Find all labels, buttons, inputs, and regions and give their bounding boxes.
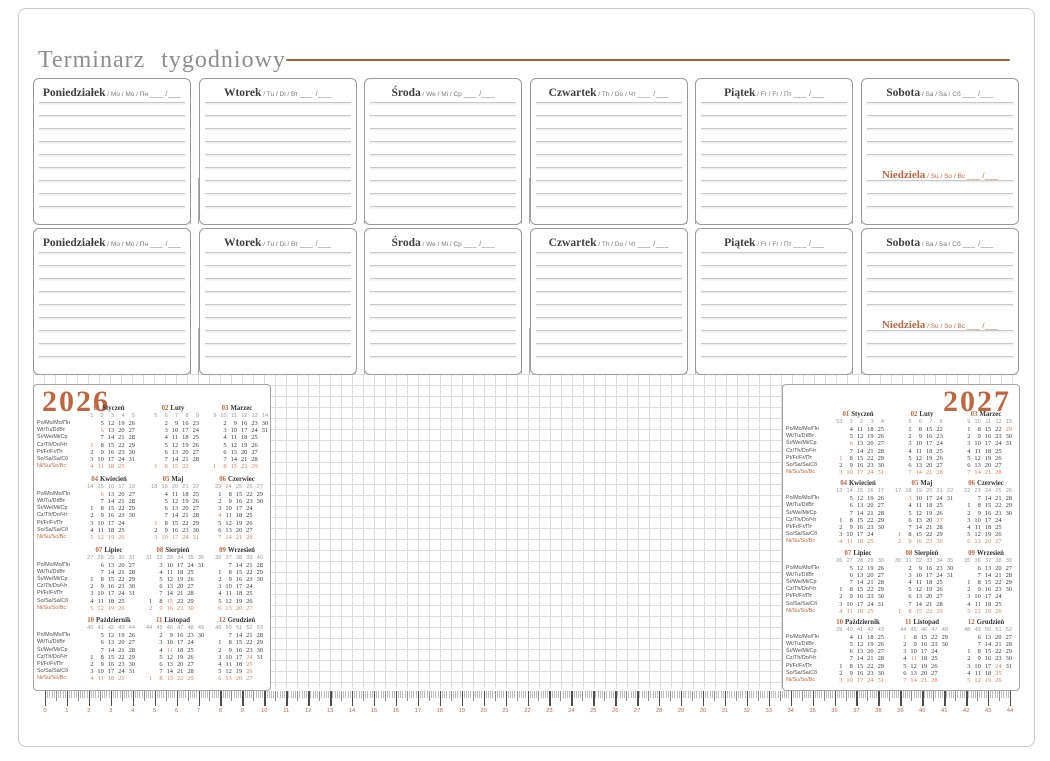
day-panel-header: Środa / We / Mi / Ср ___ /___ [365, 233, 521, 251]
date-cell: 3 [211, 583, 221, 590]
date-cell: 30 [874, 462, 884, 469]
ruler-tick-minor [117, 691, 118, 698]
date-cell: 3 [83, 590, 93, 597]
ruler-tick [440, 691, 441, 706]
date-cell [891, 601, 901, 608]
ruler-tick-minor [758, 691, 759, 701]
ruler-tick-minor [541, 691, 542, 698]
ruler-tick-minor [999, 691, 1000, 701]
date-cell: 1 [896, 634, 906, 641]
month-row: 7142128 [960, 641, 1012, 648]
date-cell: 13 [912, 462, 922, 469]
date-cell [125, 463, 135, 470]
date-cell [943, 510, 953, 517]
ruler-tick-minor [874, 691, 875, 698]
ruler-tick-minor [694, 691, 695, 698]
date-cell: 5 [157, 498, 167, 505]
date-cell: 16 [922, 565, 932, 572]
month-slot: 11Listopad444546474818152229291623303101… [890, 619, 954, 688]
week-number: 2 [853, 419, 863, 426]
date-cell: 26 [927, 663, 937, 670]
ruler-tick-minor [389, 691, 390, 698]
date-cell [938, 655, 948, 662]
week-number: 36 [970, 558, 980, 565]
date-cell: 4 [83, 598, 93, 605]
date-cell: 28 [932, 601, 942, 608]
date-cell: 8 [157, 520, 167, 527]
date-cell: 4 [83, 527, 93, 534]
month-row: 29162330 [142, 632, 204, 639]
month-name: Październik [96, 617, 131, 624]
month-header: 11Listopad [142, 617, 204, 625]
ruler-tick-minor [381, 691, 382, 698]
date-cell [194, 675, 204, 682]
date-cell [83, 569, 93, 576]
month-row: 6132027 [211, 675, 263, 682]
date-cell: 25 [247, 434, 257, 441]
date-cell [142, 576, 152, 583]
date-cell: 16 [104, 583, 114, 590]
ruler-tick-minor [407, 691, 408, 701]
date-cell: 26 [874, 433, 884, 440]
ruler-tick-minor [451, 691, 452, 701]
date-cell: 28 [991, 469, 1001, 476]
date-cell: 17 [232, 583, 242, 590]
month-row: 6132027 [960, 462, 1012, 469]
date-cell: 15 [912, 531, 922, 538]
ruler-tick-minor [626, 691, 627, 701]
week-number: 10 [970, 419, 980, 426]
date-cell: 16 [853, 462, 863, 469]
ruler-tick-minor [201, 691, 202, 698]
date-cell: 3 [832, 531, 842, 538]
ruler-tick-minor [894, 691, 895, 698]
date-cell [891, 502, 901, 509]
date-cell: 7 [970, 495, 980, 502]
ruler-tick-minor [359, 691, 360, 698]
week-number: 45 [152, 625, 162, 632]
week-numbers-row: 3940414243 [832, 627, 884, 634]
ruler-tick-minor [420, 691, 421, 698]
date-cell: 12 [221, 668, 231, 675]
month-name: Lipiec [104, 547, 122, 554]
month-row: 6132027 [142, 661, 204, 668]
ruler-tick-minor [343, 691, 344, 698]
date-cell [938, 677, 948, 684]
ruler-tick-minor [782, 691, 783, 698]
date-cell: 10 [221, 583, 231, 590]
ruler-tick-minor [762, 691, 763, 698]
ruler-tick-minor [288, 691, 289, 698]
date-cell: 31 [253, 654, 263, 661]
month-row: 18152229 [147, 520, 199, 527]
date-cell: 15 [981, 648, 991, 655]
date-cell [83, 562, 93, 569]
ruler-tick-minor [122, 691, 123, 701]
date-cell: 9 [970, 655, 980, 662]
ruler-tick-minor [832, 691, 833, 698]
month-row: 29162330 [147, 527, 199, 534]
ruler-tick-minor [536, 691, 537, 698]
month-row: 3101724 [211, 505, 263, 512]
desk-pad-sheet: Terminarz tygodniowy Poniedziałek / Mo /… [0, 0, 1050, 761]
ruler-tick [352, 691, 353, 706]
panel-connector-tab [521, 328, 531, 374]
date-cell: 14 [104, 498, 114, 505]
date-cell: 30 [125, 512, 135, 519]
date-cell [142, 583, 152, 590]
date-cell: 12 [853, 495, 863, 502]
month-row: 5121926 [832, 495, 884, 502]
date-cell: 20 [863, 440, 873, 447]
date-cell: 29 [183, 598, 193, 605]
date-cell [142, 590, 152, 597]
week-number: 42 [104, 625, 114, 632]
month-number: 08 [157, 547, 164, 554]
date-cell: 23 [183, 632, 193, 639]
weekday-label: Ni/Su/So/Вс [37, 463, 77, 470]
month-row: 7142128 [211, 534, 263, 541]
ruler-tick [45, 691, 46, 706]
date-cell: 22 [863, 517, 873, 524]
weekday-label: So/Sa/Sa/Сб [37, 456, 77, 463]
month-header: 06Czerwiec [211, 476, 263, 484]
date-cell: 1 [147, 520, 157, 527]
week-number: 20 [168, 484, 178, 491]
month-row: 29162330 [960, 586, 1012, 593]
ruler-tick-minor [861, 691, 862, 698]
ruler-tick-minor [624, 691, 625, 698]
ruler-number: 18 [432, 708, 448, 714]
day-abbr: / Su / So / Вс [925, 173, 967, 180]
month-row: 6132027 [891, 517, 953, 524]
day-panel-header: Wtorek / Tu / Di / Вт ___ /___ [200, 233, 356, 251]
date-cell: 23 [114, 583, 124, 590]
weekday-label: Cz/Th/Do/Чт [37, 654, 77, 661]
date-cell: 22 [927, 634, 937, 641]
date-cell: 26 [183, 576, 193, 583]
date-cell: 5 [842, 565, 852, 572]
date-cell: 17 [237, 427, 247, 434]
week-number: 29 [104, 555, 114, 562]
date-cell: 3 [83, 520, 93, 527]
ruler-tick-minor [635, 691, 636, 698]
date-cell: 3 [211, 654, 221, 661]
date-cell [189, 463, 199, 470]
week-number: 35 [943, 558, 953, 565]
date-cell: 23 [863, 670, 873, 677]
date-cell [938, 670, 948, 677]
date-cell: 11 [221, 590, 231, 597]
date-cell: 6 [842, 648, 852, 655]
date-cell: 22 [173, 598, 183, 605]
month-row: 5121926 [206, 442, 268, 449]
date-cell: 8 [970, 426, 980, 433]
ruler-tick-minor [328, 691, 329, 698]
date-cell: 1 [960, 579, 970, 586]
ruler-tick-minor [889, 691, 890, 701]
ruler-tick-minor [378, 691, 379, 698]
date-cell: 22 [922, 531, 932, 538]
week-numbers-row: 1415161718 [83, 484, 135, 491]
ruler-tick-minor [990, 691, 991, 698]
date-cell: 8 [152, 675, 162, 682]
month-row: 310172431 [211, 654, 263, 661]
date-cell: 11 [93, 463, 103, 470]
date-cell: 4 [901, 579, 911, 586]
month-row: 7142128 [901, 469, 943, 476]
ruler-tick-minor [207, 691, 208, 698]
date-cell [147, 434, 157, 441]
date-cell [194, 569, 204, 576]
day-name: Sobota [886, 87, 920, 99]
date-cell [960, 565, 970, 572]
day-panel-header: Sobota / Sa / Sa / Сб ___ /___ [862, 83, 1018, 101]
date-cell [206, 442, 216, 449]
month-block: 06Czerwiec222324252671421281815222929162… [960, 480, 1012, 545]
date-cell: 9 [842, 524, 852, 531]
ruler-tick-minor [828, 691, 829, 698]
date-cell: 27 [247, 449, 257, 456]
date-cell: 20 [863, 502, 873, 509]
month-row: 7142128 [83, 434, 135, 441]
date-cell: 1 [901, 426, 911, 433]
date-cell: 26 [991, 531, 1001, 538]
week-number: 48 [183, 625, 193, 632]
date-cell: 4 [832, 538, 842, 545]
ruler-tick-minor [896, 691, 897, 698]
ruler-tick [615, 691, 616, 706]
date-cell: 22 [237, 463, 247, 470]
ruler-tick-minor [977, 691, 978, 701]
ruler-tick-minor [304, 691, 305, 698]
date-cell: 11 [970, 601, 980, 608]
date-cell: 18 [863, 634, 873, 641]
date-cell: 15 [232, 491, 242, 498]
month-row: 5121926 [83, 632, 135, 639]
date-cell: 2 [147, 527, 157, 534]
date-cell: 5 [152, 576, 162, 583]
week-number: 47 [927, 627, 937, 634]
ruler-tick-minor [692, 691, 693, 701]
ruler-tick-minor [786, 691, 787, 698]
month-row: 29162330 [211, 498, 263, 505]
date-cell: 24 [178, 534, 188, 541]
ruler-tick-minor [394, 691, 395, 698]
ruler-tick-minor [212, 691, 213, 698]
month-row: 29162330 [891, 538, 953, 545]
date-cell: 20 [178, 505, 188, 512]
week-number: 24 [221, 484, 231, 491]
date-cell: 16 [104, 449, 114, 456]
date-cell: 27 [242, 527, 252, 534]
ruler-tick-minor [238, 691, 239, 698]
date-cell: 5 [93, 420, 103, 427]
day-panel-mon: Poniedziałek / Mo / Mo / Пн ___ /___ [33, 78, 191, 225]
date-cell: 24 [114, 590, 124, 597]
ruler-tick-minor [804, 691, 805, 698]
ruler-tick [133, 691, 134, 706]
date-cell [832, 655, 842, 662]
date-cell: 8 [93, 576, 103, 583]
month-row: 18152229 [211, 639, 263, 646]
date-cell: 18 [981, 448, 991, 455]
ruler-tick-minor [604, 691, 605, 701]
week-number: 40 [253, 555, 263, 562]
ruler-number: 8 [212, 708, 228, 714]
date-cell [125, 605, 135, 612]
date-cell: 16 [104, 661, 114, 668]
date-cell [874, 531, 884, 538]
date-cell: 1 [147, 463, 157, 470]
week-numbers-row: 910111213 [960, 419, 1012, 426]
date-cell: 31 [874, 469, 884, 476]
ruler-tick-minor [236, 691, 237, 698]
date-cell: 27 [125, 562, 135, 569]
date-cell: 25 [991, 448, 1001, 455]
date-cell: 23 [991, 655, 1001, 662]
month-name: Luty [919, 411, 933, 418]
date-cell: 29 [247, 463, 257, 470]
ruler-tick-minor [446, 691, 447, 698]
ruler-tick-minor [319, 691, 320, 701]
month-row: 18152229 [83, 576, 135, 583]
ruler-tick-minor [363, 691, 364, 701]
date-cell: 18 [232, 512, 242, 519]
date-cell: 11 [912, 448, 922, 455]
date-cell: 6 [901, 517, 911, 524]
ruler-tick-minor [392, 691, 393, 698]
ruler-tick-minor [416, 691, 417, 698]
month-row: 3101724 [83, 520, 135, 527]
date-cell [142, 661, 152, 668]
ruler-tick [549, 691, 550, 706]
date-cell: 13 [970, 538, 980, 545]
ruler-tick-minor [523, 691, 524, 698]
date-cell [891, 565, 901, 572]
week-number: 32 [152, 555, 162, 562]
ruler-number: 29 [673, 708, 689, 714]
ruler-tick-minor [137, 691, 138, 698]
ruler-tick-minor [587, 691, 588, 698]
day-name: Sobota [886, 237, 920, 249]
month-row: 29162330 [832, 462, 884, 469]
date-cell: 18 [178, 434, 188, 441]
date-cell [943, 538, 953, 545]
date-cell: 4 [960, 524, 970, 531]
date-cell: 3 [83, 456, 93, 463]
date-cell: 14 [981, 495, 991, 502]
month-row: 18152229 [142, 598, 204, 605]
month-number: 05 [912, 480, 919, 487]
ruler-tick-minor [159, 691, 160, 698]
date-cell: 24 [927, 648, 937, 655]
week-number: 53 [832, 419, 842, 426]
date-cell: 28 [253, 562, 263, 569]
date-cell: 15 [981, 426, 991, 433]
ruler-number: 30 [695, 708, 711, 714]
date-cell: 11 [970, 670, 980, 677]
date-cell: 29 [125, 576, 135, 583]
date-cell [258, 449, 268, 456]
ruler-tick-minor [848, 691, 849, 698]
ruler-tick-minor [867, 691, 868, 701]
ruler-tick [264, 691, 265, 706]
date-cell: 30 [1002, 586, 1012, 593]
date-cell: 8 [93, 505, 103, 512]
day-abbr: / Mo / Mo / Пн [105, 241, 149, 248]
month-header: 09Wrzesień [960, 550, 1012, 558]
date-cell: 5 [842, 641, 852, 648]
month-slot: 12Grudzień495051525371421281815222929162… [205, 617, 269, 688]
ruler-tick-minor [229, 691, 230, 698]
date-cell: 25 [932, 448, 942, 455]
week-number: 14 [83, 484, 93, 491]
week-number: 32 [912, 558, 922, 565]
week-number: 44 [896, 627, 906, 634]
ruler-tick-minor [91, 691, 92, 698]
date-cell: 1 [83, 505, 93, 512]
ruler-number: 33 [761, 708, 777, 714]
month-row: 4111825 [891, 502, 953, 509]
ruler-tick-minor [920, 691, 921, 698]
date-cell: 31 [1002, 663, 1012, 670]
ruler-tick-minor [317, 691, 318, 698]
week-numbers-row: 4950515253 [211, 625, 263, 632]
ruler-tick-minor [510, 691, 511, 698]
date-cell: 26 [242, 520, 252, 527]
ruler-number: 3 [103, 708, 119, 714]
date-cell: 30 [932, 538, 942, 545]
ruler-tick-minor [736, 691, 737, 701]
date-cell [147, 456, 157, 463]
ruler-tick-minor [887, 691, 888, 698]
week-numbers-row: 2728293031 [83, 555, 135, 562]
date-cell: 28 [927, 677, 937, 684]
month-header: 03Marzec [206, 405, 268, 413]
date-cell: 22 [991, 579, 1001, 586]
date-cell: 1 [83, 442, 93, 449]
ruler-tick-minor [161, 691, 162, 698]
ruler-number: 36 [827, 708, 843, 714]
date-cell: 9 [227, 420, 237, 427]
date-cell: 13 [104, 427, 114, 434]
date-cell [253, 527, 263, 534]
date-cell: 3 [960, 593, 970, 600]
date-cell: 27 [874, 572, 884, 579]
month-name: Wrzesień [228, 547, 255, 554]
date-cell: 17 [922, 495, 932, 502]
date-cell: 18 [104, 598, 114, 605]
ruler-tick-minor [532, 691, 533, 698]
ruler-tick-minor [299, 691, 300, 698]
date-cell: 23 [991, 433, 1001, 440]
date-cell: 14 [227, 456, 237, 463]
ruler-tick-minor [545, 691, 546, 698]
weekday-label: Wt/Tu/Di/Вт [786, 572, 826, 579]
month-number: 10 [87, 617, 94, 624]
ruler-tick-minor [997, 691, 998, 698]
month-row: 18152229 [960, 579, 1012, 586]
date-cell: 18 [173, 569, 183, 576]
date-cell: 16 [232, 647, 242, 654]
date-cell [147, 512, 157, 519]
month-slot: 01Styczeń5312344111825512192661320277142… [826, 411, 890, 480]
date-cell: 3 [896, 648, 906, 655]
day-name: Czwartek [549, 237, 597, 249]
date-cell [147, 427, 157, 434]
date-cell [147, 491, 157, 498]
